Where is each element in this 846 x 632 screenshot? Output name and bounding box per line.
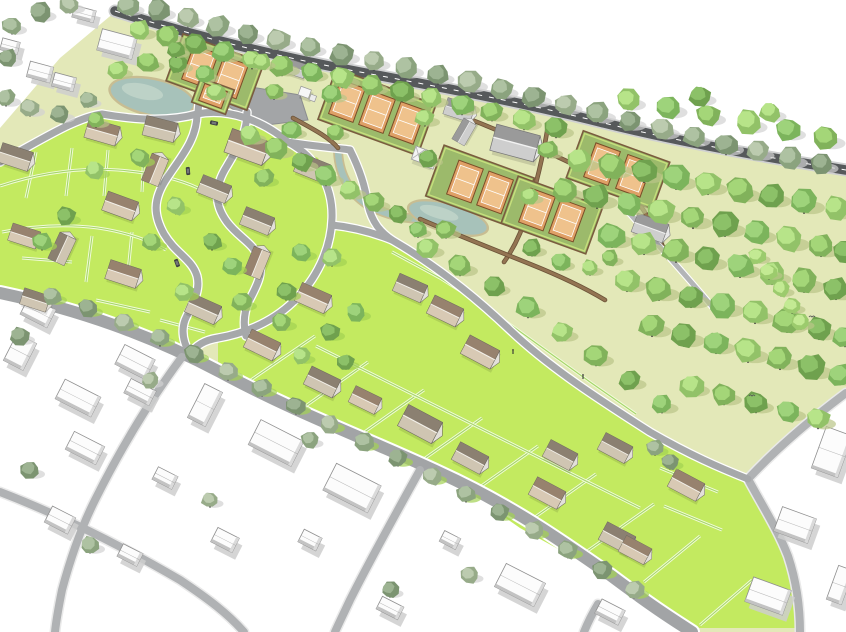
- tree: [2, 18, 27, 35]
- context-building: [374, 596, 409, 627]
- tree: [0, 89, 21, 107]
- context-building: [63, 431, 110, 471]
- context-building: [185, 384, 228, 434]
- context-building: [208, 527, 244, 559]
- context-building: [246, 420, 309, 474]
- tree: [300, 37, 327, 56]
- tree: [776, 119, 806, 141]
- tree: [60, 0, 85, 14]
- tree: [382, 582, 403, 599]
- tree: [458, 71, 488, 93]
- tree: [364, 51, 390, 70]
- site-plan-canvas: [0, 0, 846, 632]
- tree: [396, 57, 424, 79]
- tree: [491, 78, 519, 99]
- tree: [461, 567, 484, 584]
- tree: [617, 88, 646, 110]
- tree: [266, 29, 296, 51]
- context-building: [296, 529, 328, 558]
- tree: [148, 0, 176, 21]
- context-building: [53, 379, 106, 424]
- tree: [30, 2, 56, 23]
- tree: [696, 105, 726, 126]
- tree: [206, 15, 237, 36]
- tree: [522, 87, 553, 108]
- context-building: [321, 463, 387, 520]
- context-building: [150, 467, 184, 497]
- context-building: [810, 427, 846, 485]
- context-building: [437, 531, 466, 557]
- car: [186, 167, 191, 175]
- tree: [759, 103, 787, 123]
- tree: [814, 126, 846, 149]
- tree: [301, 432, 324, 449]
- tree: [10, 327, 35, 346]
- tree: [201, 493, 224, 508]
- context-building: [825, 565, 846, 611]
- tree: [20, 462, 45, 479]
- tree: [329, 43, 360, 65]
- tree: [689, 87, 717, 107]
- context-building: [492, 563, 551, 613]
- tree: [657, 97, 688, 120]
- tree: [238, 25, 264, 45]
- masterplan-rendering: [0, 0, 846, 632]
- tree: [619, 111, 647, 131]
